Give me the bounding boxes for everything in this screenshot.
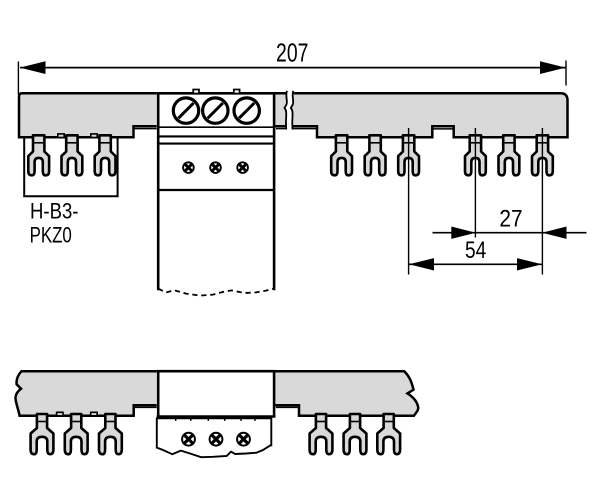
svg-text:27: 27 <box>499 206 522 233</box>
svg-text:207: 207 <box>276 39 308 67</box>
svg-text:PKZ0: PKZ0 <box>30 222 72 247</box>
svg-text:H-B3-: H-B3- <box>30 198 79 223</box>
svg-text:54: 54 <box>465 237 486 264</box>
